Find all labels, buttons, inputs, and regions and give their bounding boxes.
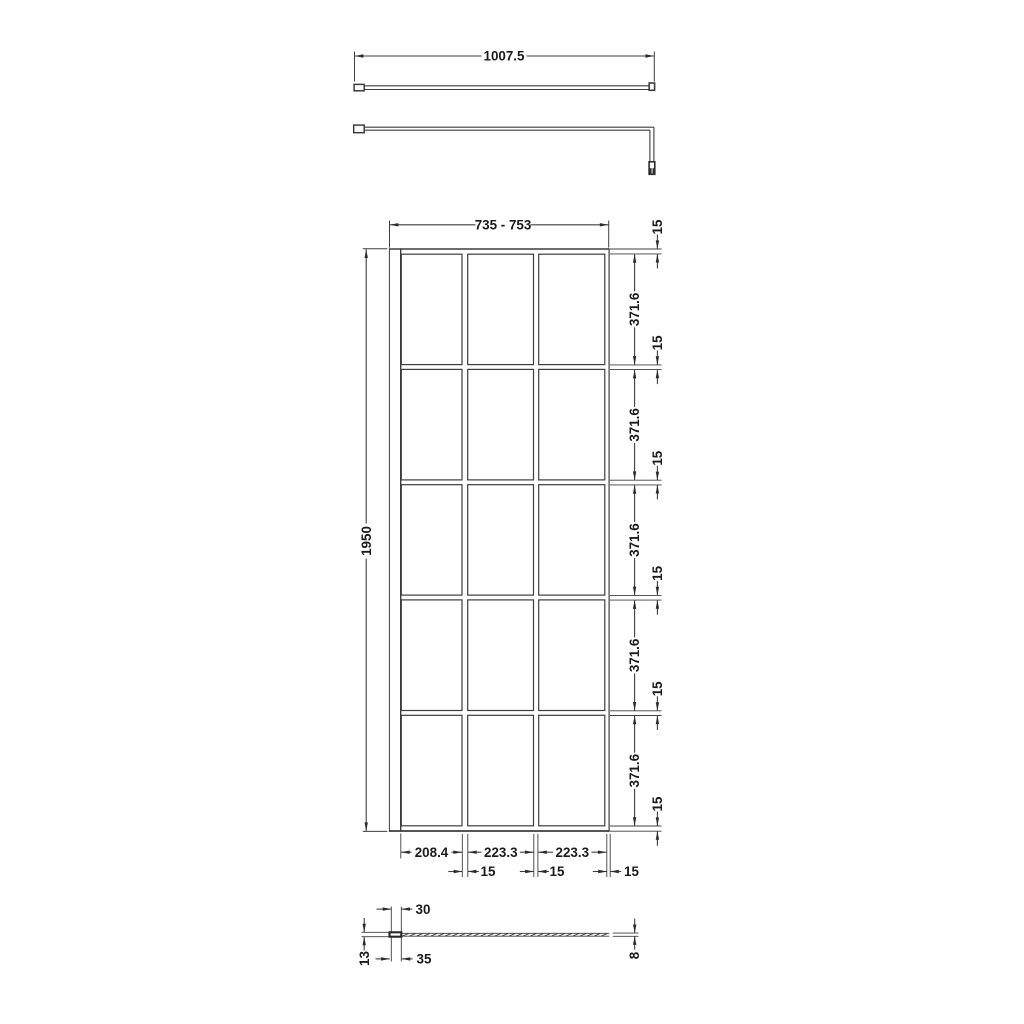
svg-text:13: 13 bbox=[357, 951, 372, 966]
svg-text:15: 15 bbox=[550, 864, 565, 879]
svg-text:15: 15 bbox=[650, 565, 665, 580]
svg-text:1007.5: 1007.5 bbox=[484, 49, 526, 64]
svg-text:15: 15 bbox=[650, 219, 665, 234]
svg-text:35: 35 bbox=[417, 952, 432, 967]
svg-text:735 - 753: 735 - 753 bbox=[475, 218, 532, 233]
svg-text:15: 15 bbox=[624, 864, 639, 879]
svg-text:371.6: 371.6 bbox=[627, 639, 642, 673]
svg-text:371.6: 371.6 bbox=[627, 523, 642, 557]
svg-text:15: 15 bbox=[481, 864, 496, 879]
svg-text:1950: 1950 bbox=[359, 526, 374, 556]
svg-text:371.6: 371.6 bbox=[627, 754, 642, 788]
svg-text:223.3: 223.3 bbox=[556, 845, 590, 860]
svg-text:8: 8 bbox=[627, 951, 642, 959]
svg-text:208.4: 208.4 bbox=[415, 845, 449, 860]
svg-text:371.6: 371.6 bbox=[627, 293, 642, 327]
svg-text:15: 15 bbox=[650, 450, 665, 465]
svg-text:371.6: 371.6 bbox=[627, 408, 642, 442]
svg-text:15: 15 bbox=[650, 335, 665, 350]
svg-text:15: 15 bbox=[650, 796, 665, 811]
svg-text:30: 30 bbox=[416, 902, 431, 917]
svg-text:223.3: 223.3 bbox=[484, 845, 518, 860]
svg-text:15: 15 bbox=[650, 681, 665, 696]
